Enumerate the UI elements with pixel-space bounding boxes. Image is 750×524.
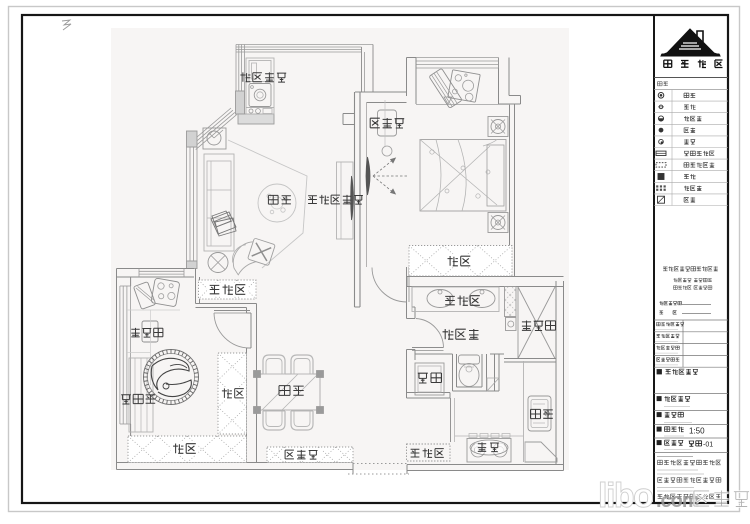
svg-text:1:50: 1:50: [689, 427, 705, 436]
svg-text:-01: -01: [703, 442, 713, 449]
svg-text:.com: .com: [656, 490, 699, 512]
svg-text:libo: libo: [598, 477, 653, 515]
